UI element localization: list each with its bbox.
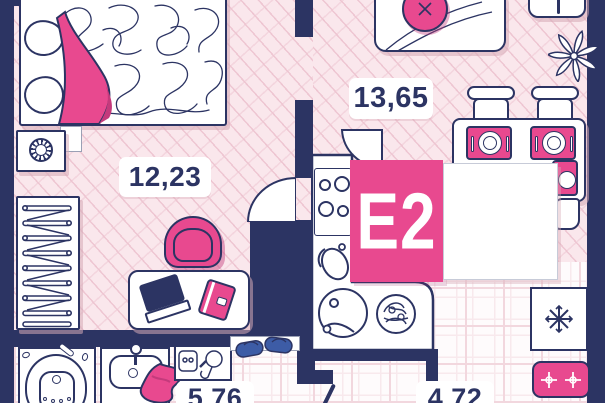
floor-plan: 12,23: [0, 0, 605, 403]
stove: [314, 168, 352, 236]
round-decor-icon: [29, 138, 53, 162]
hallway-area-label: 4,72: [416, 381, 494, 403]
burner: [319, 179, 331, 191]
kettle: [316, 240, 354, 284]
hair-dryer: [176, 347, 230, 379]
bed: [19, 0, 227, 126]
wall-hall-foot: [297, 370, 333, 384]
bathroom-area-value: 5,76: [188, 383, 243, 403]
lounge-chair: [374, 0, 506, 52]
tufted-cushion: [402, 0, 448, 32]
wall-block-center: [250, 220, 315, 338]
outlet-hairdryer-shelf: [174, 345, 232, 381]
placemat: [530, 126, 576, 160]
side-table: [528, 0, 586, 18]
fridge: [530, 287, 588, 351]
sink-faucet: [322, 316, 356, 336]
kitchen-area-label: 13,65: [349, 78, 433, 119]
burner: [318, 201, 334, 217]
wall-mid-upper: [295, 0, 313, 37]
crosshair-icon: [540, 371, 558, 389]
faucet: [130, 343, 142, 355]
slippers: [234, 333, 298, 361]
placemat: [466, 126, 512, 160]
notebook: [197, 278, 237, 322]
burner: [337, 205, 349, 217]
hallway-area-value: 4,72: [428, 383, 483, 403]
kitchen-area-value: 13,65: [353, 82, 428, 115]
unit-badge-panel: [443, 163, 558, 280]
toilet: [18, 347, 96, 403]
snowflake-icon: [543, 303, 575, 335]
burner: [334, 176, 350, 192]
hangers-icon: [18, 198, 78, 328]
plant-pot: [374, 292, 418, 336]
desk: [128, 270, 250, 330]
bedroom-armchair: [164, 216, 222, 268]
bedroom-area-label: 12,23: [119, 157, 211, 197]
wardrobe: [16, 196, 80, 330]
kitchen-sink: [318, 288, 368, 338]
wall-counter-cap: [426, 349, 438, 383]
bedroom-area-value: 12,23: [129, 161, 202, 193]
laptop: [139, 272, 194, 326]
bedroom-door-swing: [246, 176, 296, 222]
bathroom-area-label: 5,76: [176, 381, 254, 403]
flower-icon: [548, 28, 600, 82]
unit-code: E2: [356, 181, 436, 261]
unit-badge[interactable]: E2: [350, 160, 443, 282]
duvet-fold: [55, 10, 125, 126]
crosshair-icon: [564, 371, 582, 389]
entry-mat: [532, 361, 590, 398]
nightstand: [16, 130, 66, 172]
